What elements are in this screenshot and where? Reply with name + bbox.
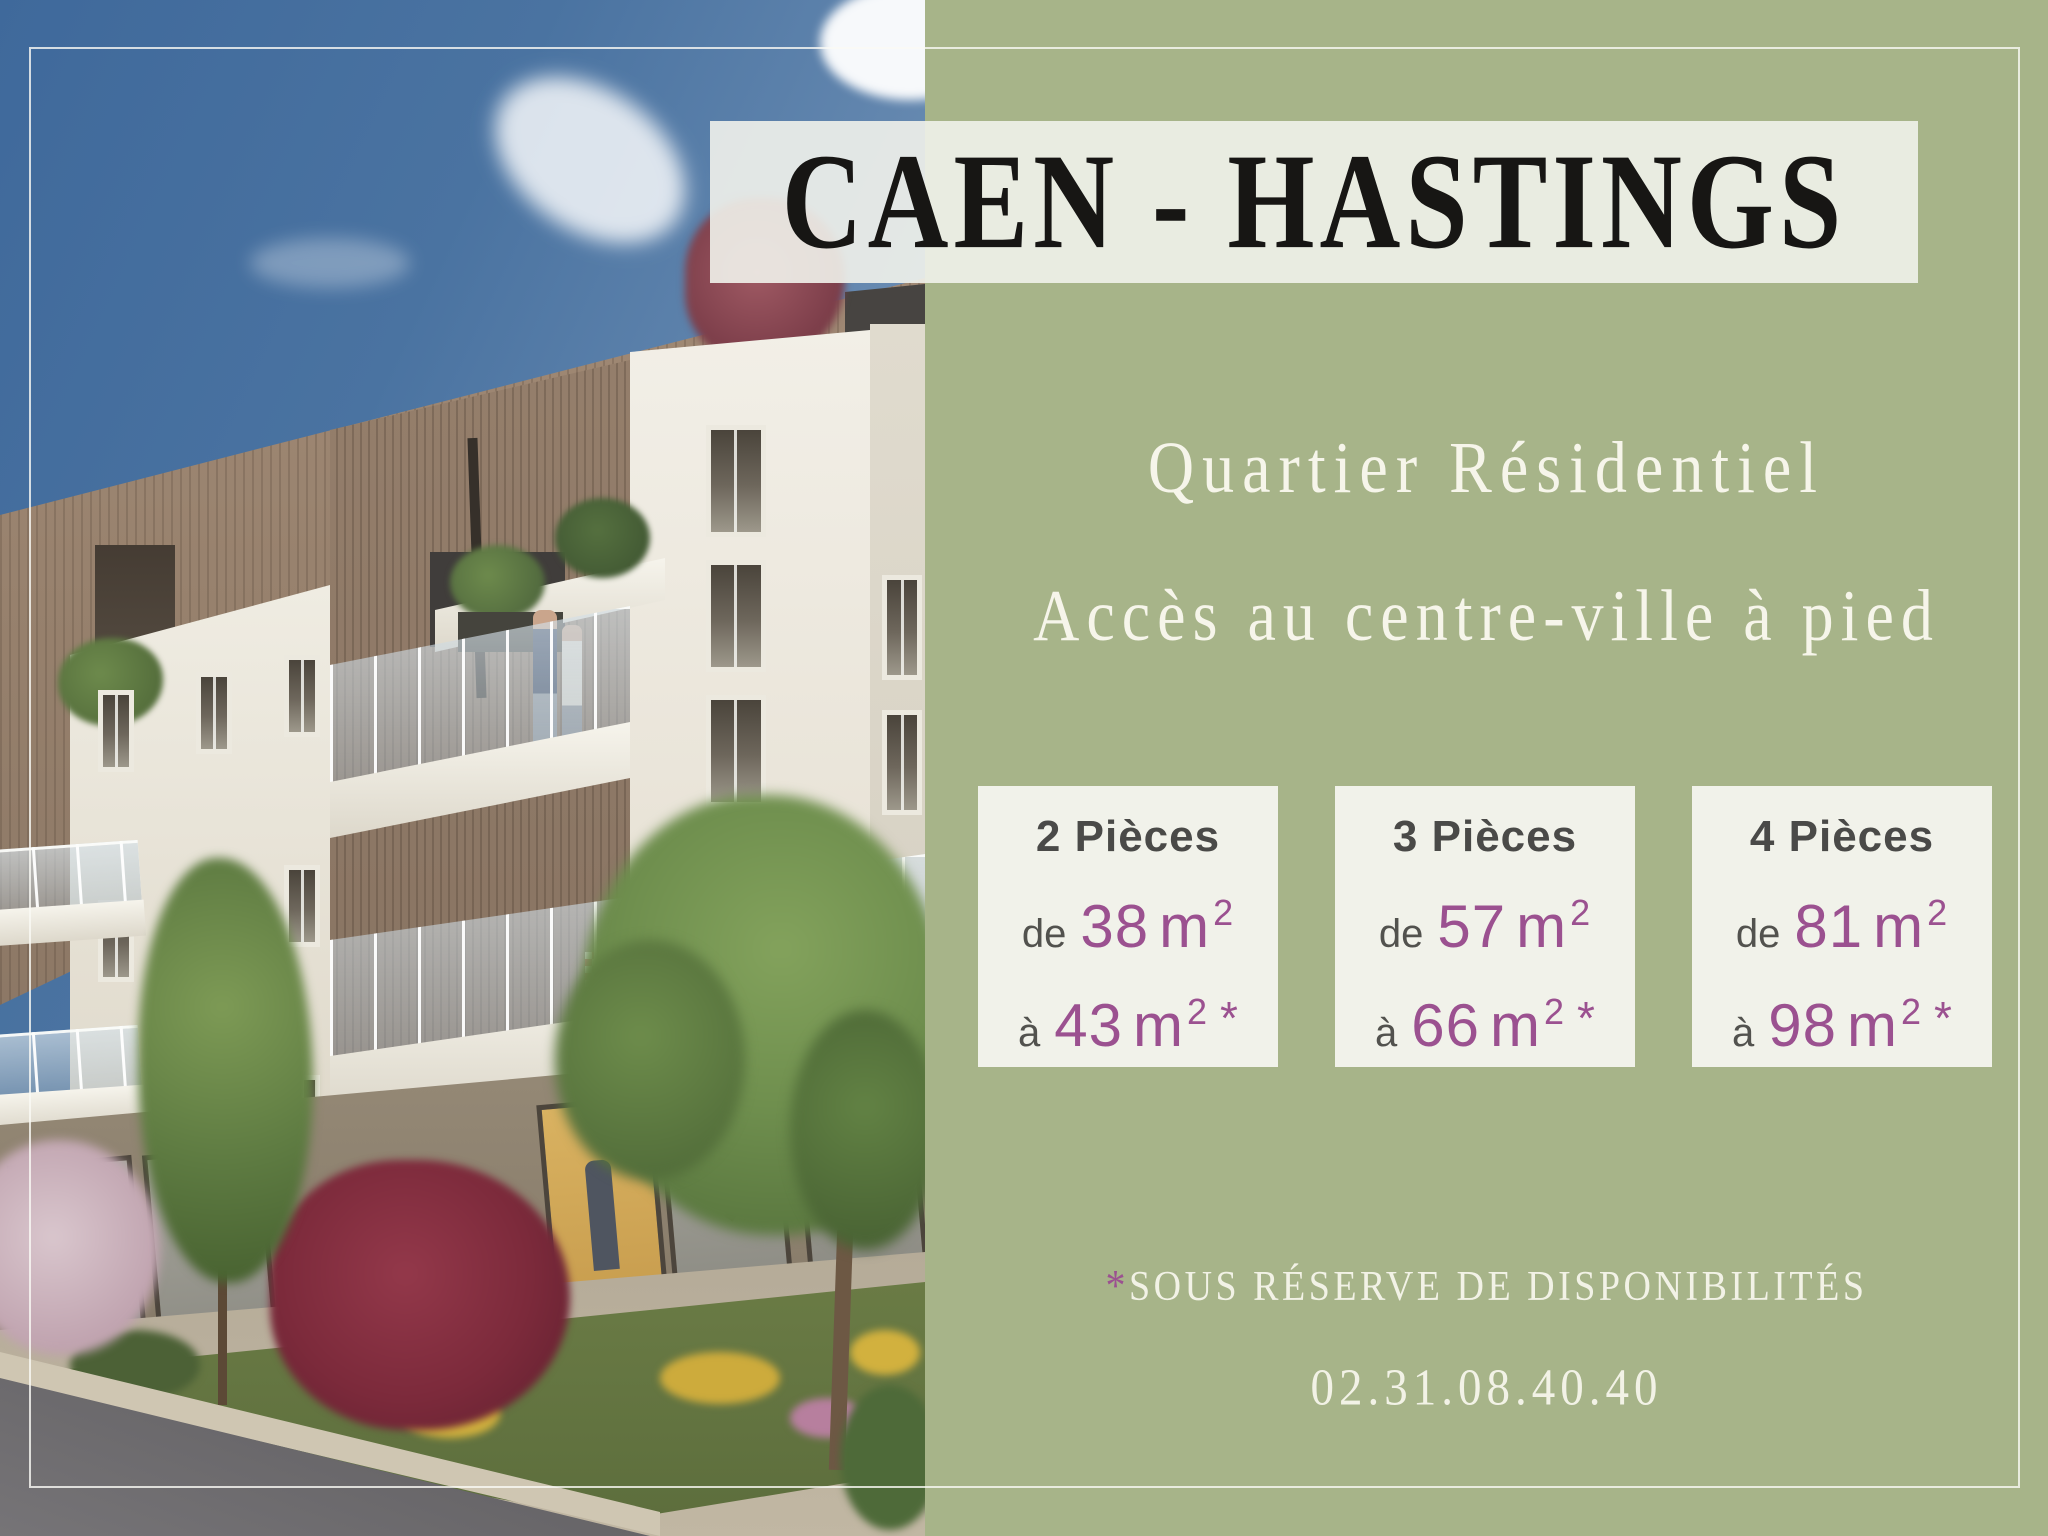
unit-cards-row: 2 Pièces de38m2 à43m2* 3 Pièces de57m2 à… <box>978 786 1994 1067</box>
title-banner: CAEN - HASTINGS <box>710 121 1918 283</box>
range-value: 43m2 <box>1054 992 1208 1059</box>
roof-shrub <box>555 498 650 578</box>
card-range-to: à98m2* <box>1692 991 1992 1060</box>
unit-card-4-pieces: 4 Pièces de81m2 à98m2* <box>1692 786 1992 1067</box>
cloud-icon <box>820 0 925 100</box>
card-range-from: de38m2 <box>978 892 1278 961</box>
card-title: 3 Pièces <box>1335 812 1635 862</box>
red-bush <box>270 1160 570 1430</box>
range-value: 81m2 <box>1794 893 1948 960</box>
superscript: 2 <box>1901 991 1922 1032</box>
window <box>196 672 232 754</box>
window <box>284 655 320 737</box>
unit-card-2-pieces: 2 Pièces de38m2 à43m2* <box>978 786 1278 1067</box>
asterisk: * <box>1934 992 1952 1044</box>
range-label: à <box>1732 1011 1754 1055</box>
asterisk: * <box>1106 1261 1130 1311</box>
disclaimer-text: SOUS RÉSERVE DE DISPONIBILITÉS <box>1129 1264 1868 1310</box>
superscript: 2 <box>1570 892 1591 933</box>
card-range-to: à43m2* <box>978 991 1278 1060</box>
cloud-icon <box>250 238 410 288</box>
roof-shrub <box>450 545 545 620</box>
large-tree-lobe <box>555 940 745 1180</box>
superscript: 2 <box>1187 991 1208 1032</box>
window <box>882 710 922 815</box>
page-title: CAEN - HASTINGS <box>782 103 1847 301</box>
cloud-icon <box>464 42 716 277</box>
range-label: à <box>1018 1011 1040 1055</box>
phone-number: 02.31.08.40.40 <box>925 1344 2048 1432</box>
range-label: de <box>1022 912 1067 956</box>
range-label: de <box>1736 912 1781 956</box>
superscript: 2 <box>1544 991 1565 1032</box>
subtitle-quartier: Quartier Résidentiel <box>925 399 2048 537</box>
range-value: 66m2 <box>1411 992 1565 1059</box>
card-range-from: de57m2 <box>1335 892 1635 961</box>
superscript: 2 <box>1213 892 1234 933</box>
window <box>706 425 766 537</box>
superscript: 2 <box>1927 892 1948 933</box>
card-title: 2 Pièces <box>978 812 1278 862</box>
window <box>706 695 766 807</box>
real-estate-flyer: Quartier Résidentiel Accès au centre-vil… <box>0 0 2048 1536</box>
asterisk: * <box>1577 992 1595 1044</box>
window <box>882 575 922 680</box>
card-range-from: de81m2 <box>1692 892 1992 961</box>
asterisk: * <box>1220 992 1238 1044</box>
range-value: 38m2 <box>1080 893 1234 960</box>
subtitle-acces: Accès au centre-ville à pied <box>925 547 2048 685</box>
unit-card-3-pieces: 3 Pièces de57m2 à66m2* <box>1335 786 1635 1067</box>
range-label: de <box>1379 912 1424 956</box>
flower-patch-yellow <box>850 1330 920 1375</box>
card-range-to: à66m2* <box>1335 991 1635 1060</box>
range-label: à <box>1375 1011 1397 1055</box>
availability-disclaimer: *SOUS RÉSERVE DE DISPONIBILITÉS <box>925 1242 2048 1331</box>
door-person <box>584 1159 619 1271</box>
card-title: 4 Pièces <box>1692 812 1992 862</box>
range-value: 57m2 <box>1437 893 1591 960</box>
flower-patch-yellow <box>660 1352 780 1404</box>
range-value: 98m2 <box>1768 992 1922 1059</box>
window <box>706 560 766 672</box>
window <box>98 690 134 772</box>
